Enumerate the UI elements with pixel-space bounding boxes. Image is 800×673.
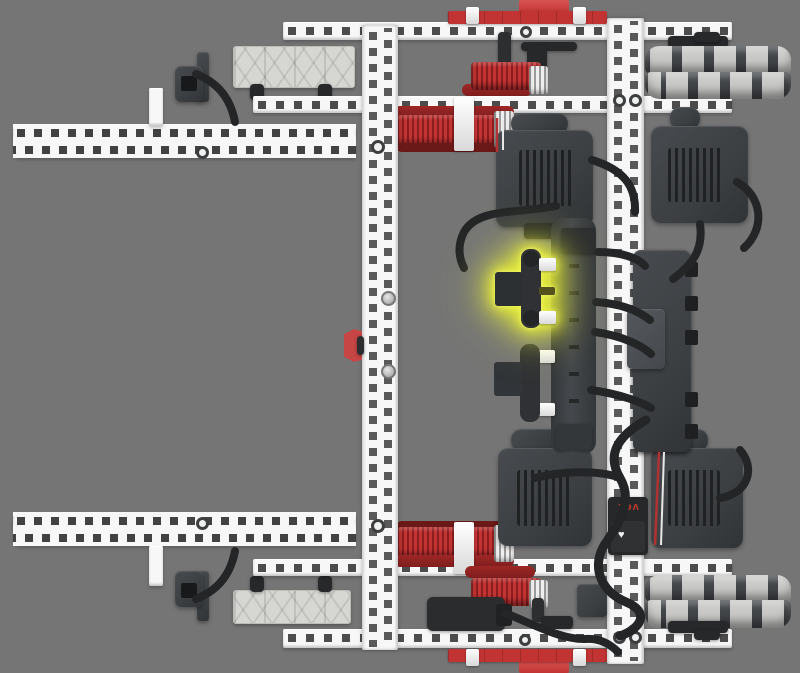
shaft-lock-ring: [520, 26, 532, 38]
hole-row: [13, 529, 356, 546]
plate-mount: [318, 576, 332, 592]
shaft-lock-ring: [371, 140, 385, 154]
rail-clip: [573, 7, 586, 24]
rail-clip: [573, 649, 586, 666]
beam-bottom-1: [283, 629, 732, 648]
omni-wheel-bottom-row1: [645, 575, 791, 602]
standoff-post-top: [149, 88, 163, 126]
white-standoff: [454, 97, 474, 151]
shaft-lock-ring: [629, 94, 642, 107]
smart-motor-bottom-right: [651, 448, 743, 548]
highlight-block: [495, 272, 523, 306]
shaft-lock-ring: [371, 519, 385, 533]
fork-beam-top: [13, 124, 356, 158]
rail-clip: [466, 7, 479, 24]
standoff-pin: [538, 403, 555, 416]
hex-bolt: [381, 291, 396, 306]
vex-logo: vex: [608, 501, 648, 513]
highlight-knob: [523, 310, 539, 326]
omni-wheel-top-row1: [645, 46, 791, 74]
shaft-bracket-block: [494, 362, 522, 396]
hole-column: [366, 28, 380, 647]
motor-vents: [517, 470, 573, 526]
hole-row: [13, 124, 356, 141]
highlighted-part: [478, 236, 578, 342]
wheel-hub: [694, 630, 720, 640]
shaft-collar: [529, 66, 548, 94]
clip-mount: [357, 336, 364, 355]
hole-row: [13, 141, 356, 158]
drive-shaft: [498, 32, 511, 66]
shaft-lock-ring: [629, 631, 642, 644]
radio-panel: ♥: [611, 521, 645, 552]
motor-connector: [496, 604, 512, 626]
hex-bolt: [381, 364, 396, 379]
brain-side-panel: [627, 309, 665, 369]
plate-mount: [250, 576, 264, 592]
hole-column: [611, 21, 625, 661]
smart-motor-bottom-center: [498, 448, 592, 546]
shaft-lock-ring: [519, 634, 531, 646]
c-channel-left: [362, 25, 398, 650]
shaft-lock-ring: [613, 94, 626, 107]
gusset-plate-top: [233, 46, 355, 88]
highlight-pin: [539, 311, 556, 324]
wheel-hub: [694, 32, 720, 42]
omni-wheel-top-row2: [645, 72, 791, 99]
rail-clip: [466, 649, 479, 666]
hole-column: [381, 28, 395, 647]
standoff-pin: [538, 350, 555, 363]
highlight-pin: [539, 258, 556, 271]
brain-port: [685, 424, 698, 439]
shaft-lock-ring: [196, 517, 209, 530]
sensor-box: [577, 584, 607, 617]
smart-motor-top-center: [496, 130, 593, 227]
bracket-hole: [181, 583, 197, 598]
bracket-hole: [181, 76, 197, 91]
hole-row: [13, 512, 356, 529]
gear-flange: [465, 566, 535, 578]
motor-vents: [519, 150, 575, 206]
battery-foot: [556, 424, 592, 450]
standoff-post-bottom: [149, 546, 163, 586]
shaft-lock-ring: [196, 146, 209, 159]
motor-vents: [668, 148, 724, 202]
brain-port: [685, 296, 698, 311]
motor-bottom-lying: [427, 597, 505, 631]
highlight-knob: [523, 251, 539, 267]
fork-beam-bottom: [13, 512, 356, 546]
mount-bracket: [541, 616, 573, 629]
shaft-lock-ring: [613, 631, 626, 644]
motor-vents: [668, 470, 720, 526]
heart-icon: ♥: [618, 530, 625, 541]
vex-radio: vex ♥: [608, 497, 648, 555]
brain-port: [685, 330, 698, 345]
shaft-bracket-plate: [520, 344, 540, 422]
brain-port: [685, 392, 698, 407]
highlight-axle: [539, 287, 555, 295]
robot-render-canvas: vex ♥: [0, 0, 800, 673]
smart-motor-top-right: [651, 126, 748, 223]
gusset-plate-bottom: [233, 590, 351, 624]
brain-port: [685, 262, 698, 277]
